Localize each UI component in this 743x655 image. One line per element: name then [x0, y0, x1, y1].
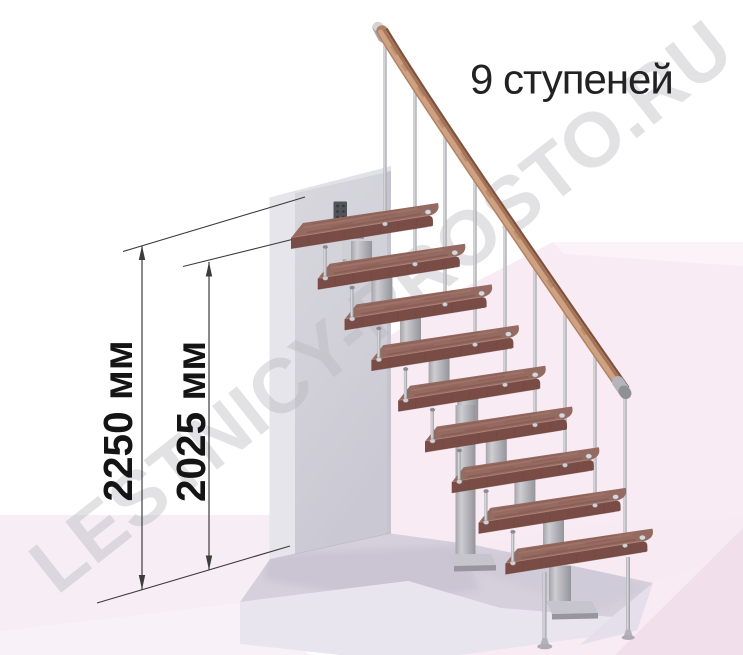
svg-text:2025 мм: 2025 мм	[168, 341, 214, 502]
svg-text:2250 мм: 2250 мм	[95, 340, 141, 501]
svg-text:9 ступеней: 9 ступеней	[470, 56, 673, 103]
